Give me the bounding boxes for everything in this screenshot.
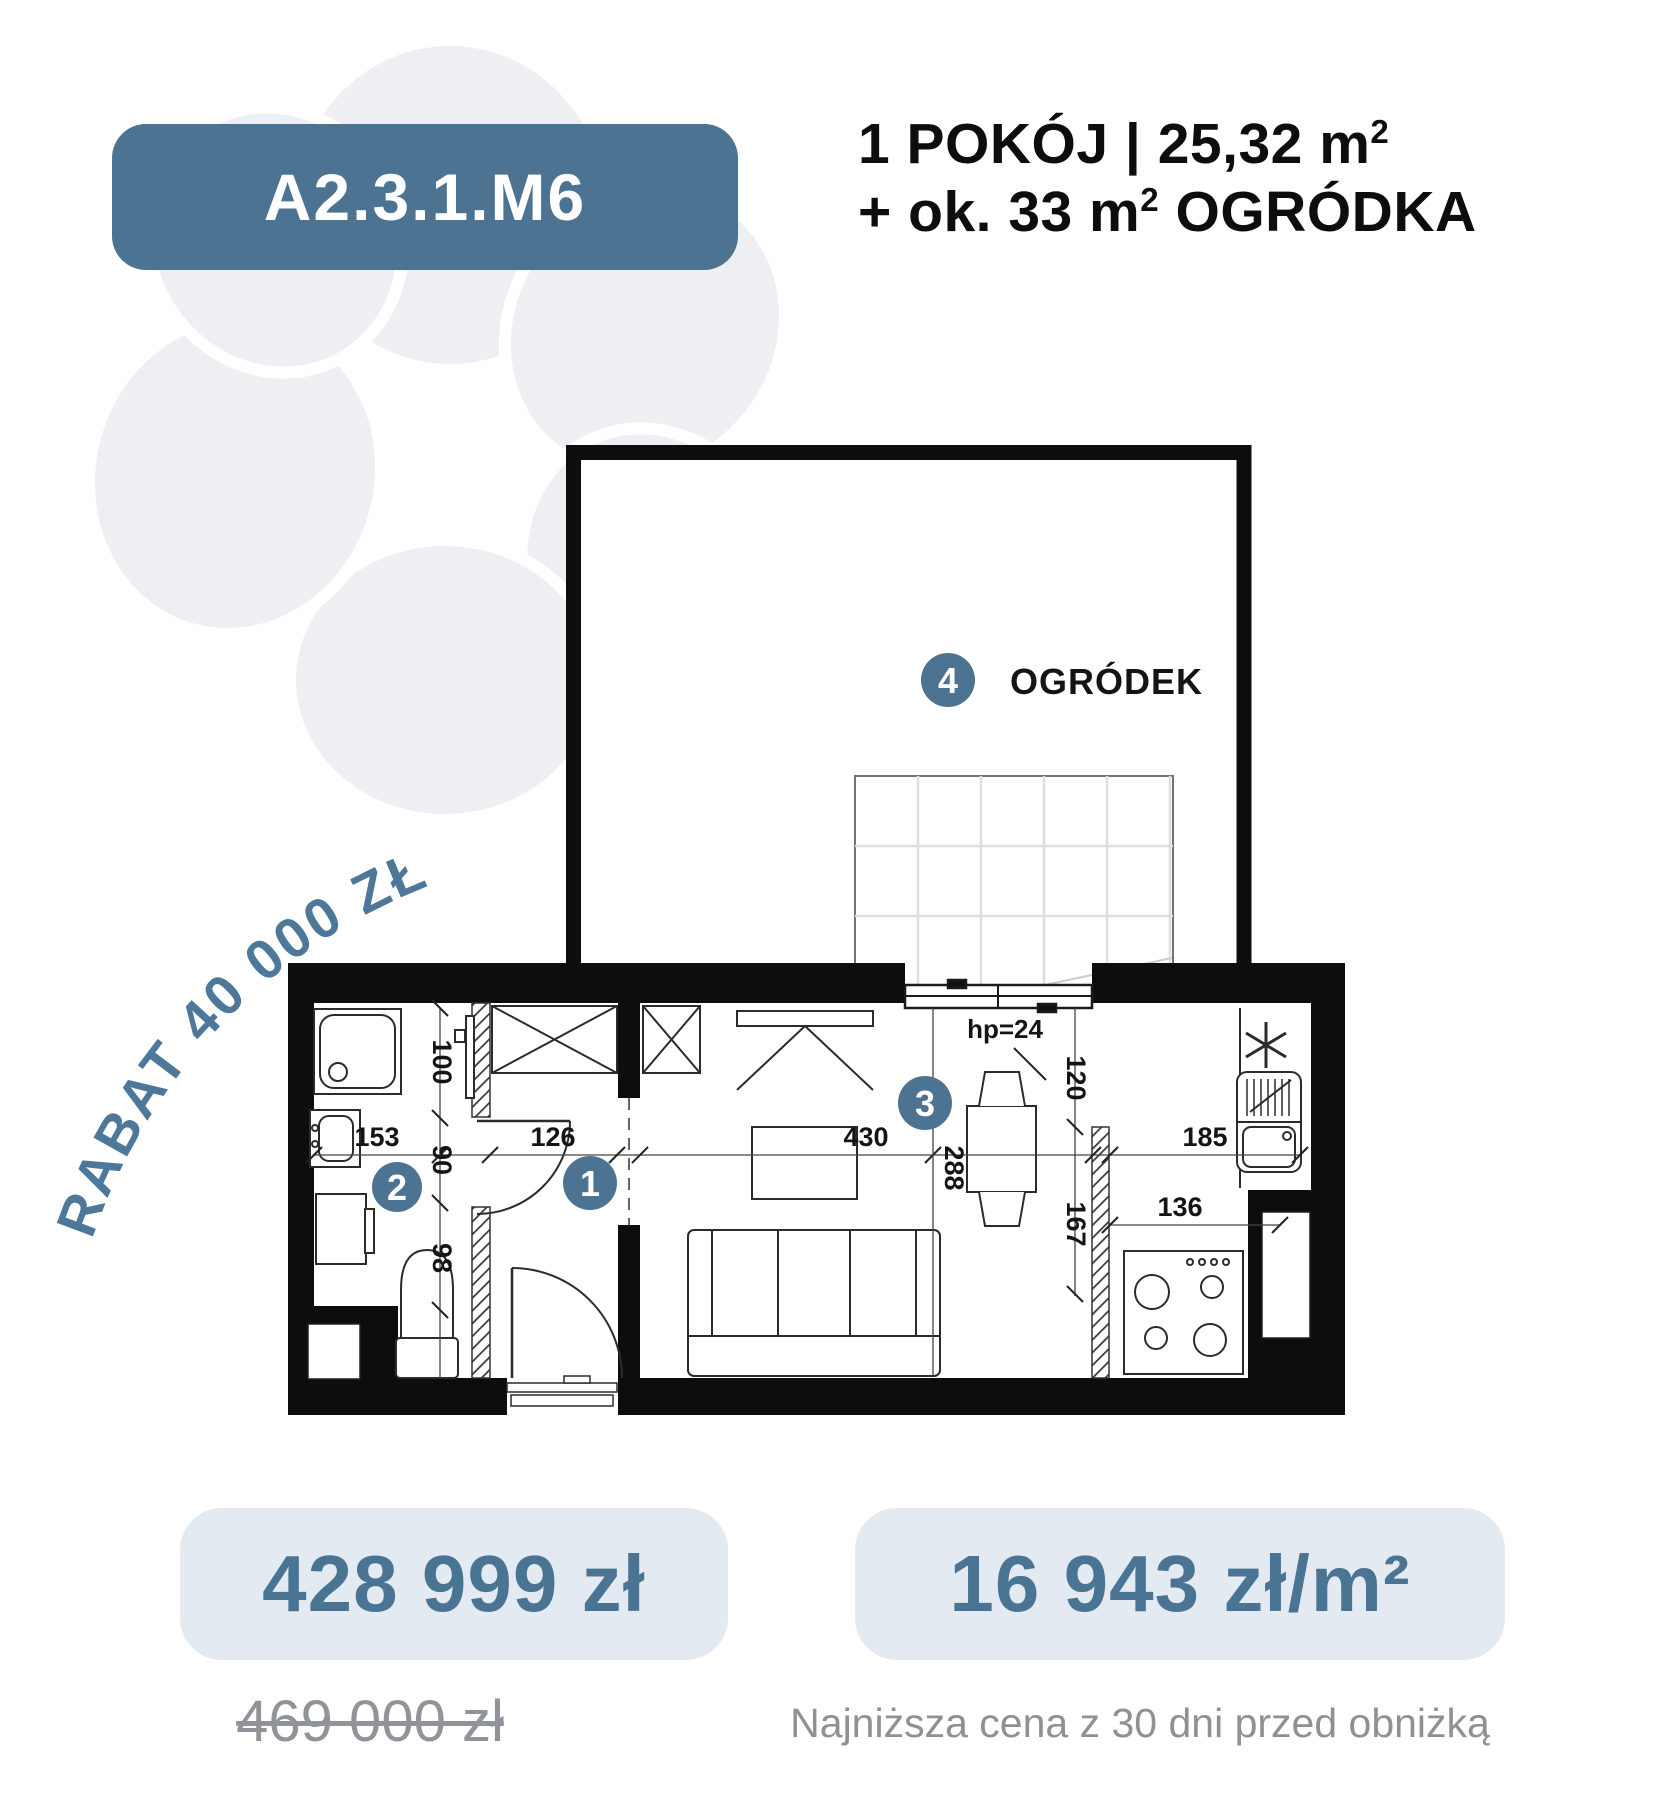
rooms-area-line: 1 POKÓJ | 25,32 m2 bbox=[858, 110, 1477, 178]
wardrobe-icon bbox=[492, 1006, 617, 1073]
price-per-m2-value: 16 943 zł/m² bbox=[949, 1538, 1410, 1630]
unit-id-badge: A2.3.1.M6 bbox=[112, 124, 738, 270]
dim-living-depth: 288 bbox=[939, 1145, 969, 1190]
room-number-living: 3 bbox=[915, 1083, 935, 1124]
garden-area-line: + ok. 33 m2 OGRÓDKA bbox=[858, 178, 1477, 246]
dim-bath-bottom: 98 bbox=[427, 1243, 457, 1273]
washing-machine-icon bbox=[316, 1194, 374, 1264]
old-price: 469 000 zł bbox=[160, 1688, 580, 1755]
coffee-table-icon bbox=[752, 1127, 857, 1199]
dining-table-icon bbox=[967, 1072, 1036, 1226]
dim-living-width: 430 bbox=[843, 1122, 888, 1152]
room-number-bathroom: 2 bbox=[387, 1167, 407, 1208]
price-box: 428 999 zł bbox=[180, 1508, 728, 1660]
room-number-hall: 1 bbox=[580, 1163, 600, 1204]
dim-hall-door: 126 bbox=[530, 1122, 575, 1152]
dim-kitchen-wall: 167 bbox=[1061, 1201, 1091, 1246]
shaft-right bbox=[1262, 1212, 1310, 1338]
entry-door-icon bbox=[507, 1268, 622, 1406]
window-sill-label: hp=24 bbox=[967, 1014, 1043, 1044]
fold-down-bed-icon bbox=[737, 1011, 873, 1090]
price-per-m2-box: 16 943 zł/m² bbox=[855, 1508, 1505, 1660]
lowest-price-disclaimer: Najniższa cena z 30 dni przed obniżką bbox=[770, 1700, 1510, 1747]
wardrobe-small-icon bbox=[643, 1006, 700, 1073]
boiler-icon bbox=[1246, 1022, 1286, 1068]
washbasin-icon bbox=[310, 1110, 360, 1167]
shaft-left bbox=[308, 1324, 360, 1379]
terrace-window bbox=[905, 980, 1092, 1012]
sofa-icon bbox=[688, 1230, 940, 1376]
living-room-furniture bbox=[688, 1011, 1036, 1376]
dim-kitchen-counter: 185 bbox=[1182, 1122, 1227, 1152]
cooktop-icon bbox=[1124, 1251, 1243, 1374]
offer-flyer: 153 126 430 185 136 100 90 98 288 120 16… bbox=[0, 0, 1660, 1800]
price-value: 428 999 zł bbox=[262, 1538, 646, 1630]
room-number-garden: 4 bbox=[938, 660, 958, 701]
dim-bath-width: 153 bbox=[354, 1122, 399, 1152]
radiator-icon bbox=[466, 1016, 474, 1098]
dim-bath-top: 100 bbox=[427, 1039, 457, 1084]
dim-kitchen-opening: 120 bbox=[1061, 1055, 1091, 1100]
unit-id-label: A2.3.1.M6 bbox=[264, 159, 586, 235]
terrace-grid bbox=[855, 776, 1173, 988]
garden-label: OGRÓDEK bbox=[1010, 660, 1203, 702]
kitchen-sink-icon bbox=[1237, 1072, 1301, 1172]
apartment-summary: 1 POKÓJ | 25,32 m2 + ok. 33 m2 OGRÓDKA bbox=[858, 110, 1477, 247]
dim-kitchen-lower: 136 bbox=[1157, 1192, 1202, 1222]
dim-bath-door: 90 bbox=[427, 1145, 457, 1175]
shower-icon bbox=[314, 1009, 401, 1094]
